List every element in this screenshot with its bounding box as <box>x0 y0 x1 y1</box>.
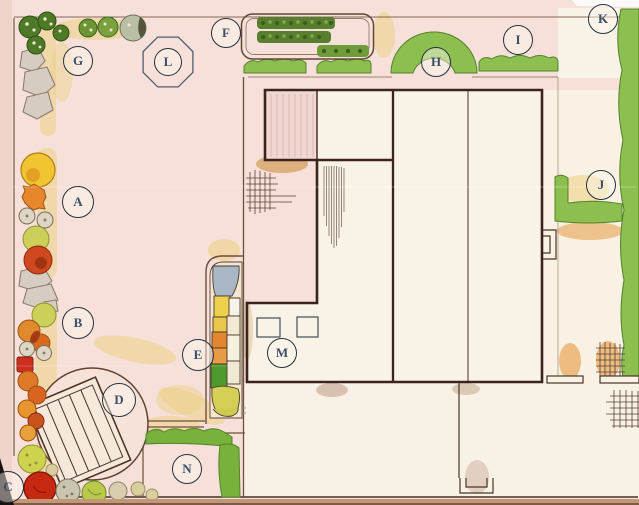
label-i: I <box>503 25 533 55</box>
label-l: L <box>154 48 182 76</box>
step-bar-right <box>600 376 639 383</box>
label-n: N <box>172 454 202 484</box>
label-e-letter: E <box>194 347 203 363</box>
label-n-letter: N <box>182 461 191 477</box>
label-g-letter: G <box>73 53 83 69</box>
label-h: H <box>421 47 451 77</box>
label-j-letter: J <box>598 177 605 193</box>
mosaic-bed <box>210 262 242 418</box>
label-f: F <box>211 18 241 48</box>
label-l-letter: L <box>164 54 173 70</box>
label-e: E <box>182 339 214 371</box>
label-k-letter: K <box>598 11 608 27</box>
label-m-letter: M <box>276 345 288 361</box>
label-c-letter: C <box>3 479 12 495</box>
label-j: J <box>586 170 616 200</box>
label-h-letter: H <box>431 54 441 70</box>
garden-plan-photo: A B C D E F G H I J K L M N <box>0 0 639 505</box>
label-b: B <box>62 307 94 339</box>
hedge-right-strip <box>618 9 639 377</box>
hedge-n-right <box>219 444 240 497</box>
plan-canvas <box>0 0 639 505</box>
label-a-letter: A <box>73 194 82 210</box>
label-g: G <box>63 46 93 76</box>
label-k: K <box>588 4 618 34</box>
planter-square-1 <box>257 318 280 337</box>
label-b-letter: B <box>74 315 83 331</box>
step-bar-left <box>547 376 583 383</box>
label-d-letter: D <box>114 392 123 408</box>
label-m: M <box>267 338 297 368</box>
planter-square-2 <box>297 317 318 337</box>
label-a: A <box>62 186 94 218</box>
label-d: D <box>102 383 136 417</box>
label-f-letter: F <box>222 25 230 41</box>
label-i-letter: I <box>515 32 520 48</box>
